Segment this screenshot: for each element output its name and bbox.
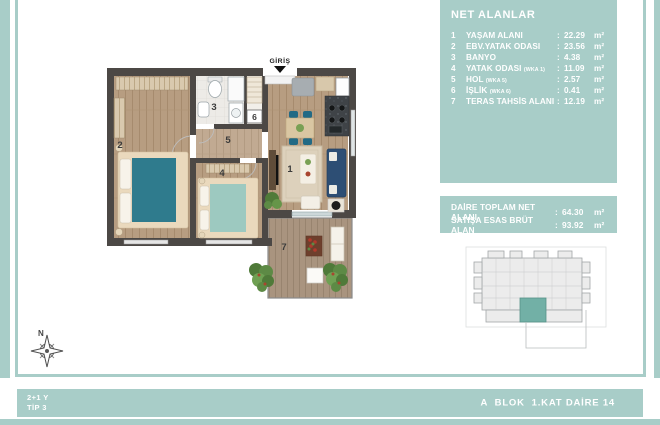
window [206,240,252,244]
total-sep: : [555,207,562,217]
area-row: 4 YATAK ODASI (WKA 1) : 11.09 m² [451,63,609,74]
plan-type-line2: TİP 3 [27,403,49,413]
living-furniture [264,146,346,212]
north-label: N [38,329,44,338]
room-label-master: 2 [117,140,122,151]
wardrobe [116,77,188,90]
plan-type-line1: 2+1 Y [27,393,49,403]
highlighted-unit [520,298,546,322]
area-row: 5 HOL (WKA 5) : 2.57 m² [451,74,609,85]
utility-shelves [247,77,262,103]
plan-type: 2+1 Y TİP 3 [27,393,49,412]
unit-location: A BLOK 1.KAT DAİRE 14 [480,398,615,409]
master-bed [116,145,189,236]
building-key-plan [466,247,606,348]
area-row: 3 BANYO : 4.38 m² [451,52,609,63]
room-label-terrace: 7 [281,242,286,253]
room-label-hall: 5 [225,135,231,146]
total-value: 64.30 [562,207,594,217]
entrance-arrow-icon [274,66,286,73]
net-areas-panel: NET ALANLAR 1 YAŞAM ALANI : 22.29 m² 2 E… [440,0,617,183]
area-row: 1 YAŞAM ALANI : 22.29 m² [451,30,609,41]
footer-band: 2+1 Y TİP 3 A BLOK 1.KAT DAİRE 14 [17,389,643,417]
apartment-plan: GİRİŞ [107,57,356,298]
entrance-doormat [265,76,295,84]
area-row-sep: : [557,31,564,40]
area-row: 7 TERAS TAHSİS ALANI : 12.19 m² [451,96,609,107]
window [124,240,168,244]
net-areas-title: NET ALANLAR [451,9,609,21]
total-row: DAİRE TOPLAM NET ALANI : 64.30 m² [451,202,609,215]
bed [198,178,258,238]
room-label-bathroom: 3 [211,102,216,113]
room-label-living: 1 [287,164,293,175]
area-row-label: YAŞAM ALANI [466,31,557,40]
room-label-utility: 6 [252,112,257,122]
window [351,110,355,156]
area-row: 2 EBV.YATAK ODASI : 23.56 m² [451,41,609,52]
wardrobe [206,164,250,173]
area-row-no: 1 [451,31,466,40]
entrance-label: GİRİŞ [269,57,290,65]
room-label-bedroom: 4 [219,168,225,179]
terrace-door-glass [292,212,332,216]
total-unit: m² [594,207,609,217]
totals-panel: DAİRE TOPLAM NET ALANI : 64.30 m² SATIŞA… [440,196,617,233]
area-row-value: 22.29 [564,31,594,40]
dresser [114,98,125,138]
area-row: 6 İŞLİK (WKA 6) : 0.41 m² [451,85,609,96]
compass-rose: N [31,329,63,367]
area-row-unit: m² [594,31,609,40]
